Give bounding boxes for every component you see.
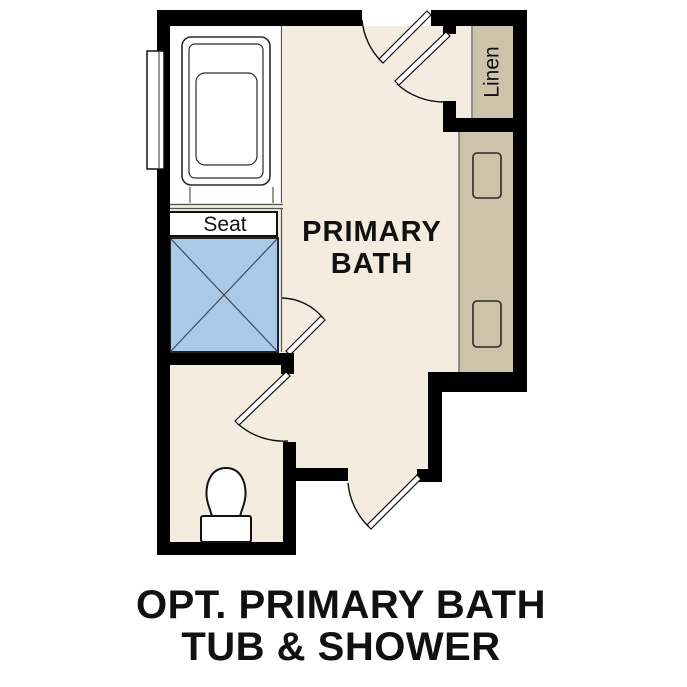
wall-below-shower xyxy=(157,353,294,365)
toilet-tank xyxy=(201,516,251,542)
floor-lower-hall xyxy=(295,380,428,468)
linen-label: Linen xyxy=(481,46,504,97)
floor-plan-page: Seat Linen xyxy=(0,0,687,687)
caption-line1: OPT. PRIMARY BATH xyxy=(136,583,546,627)
wall-right-lower xyxy=(428,372,442,482)
wall-toilet-bottom xyxy=(157,542,295,555)
window xyxy=(147,51,164,169)
room-label-line1: PRIMARY xyxy=(302,216,442,248)
tub-deck xyxy=(170,26,283,203)
vanity-counter xyxy=(459,132,513,372)
wall-top-left xyxy=(157,10,362,26)
room-label-line2: BATH xyxy=(331,248,413,280)
wall-toilet-door-stub xyxy=(281,353,294,374)
toilet-bowl xyxy=(206,468,245,517)
caption-line2: TUB & SHOWER xyxy=(181,625,500,669)
wall-linen-bottom xyxy=(443,118,513,132)
floor-plan-canvas: Seat Linen xyxy=(0,0,687,687)
wall-right xyxy=(513,10,527,392)
wall-below-vanity xyxy=(442,372,527,392)
seat-label: Seat xyxy=(203,213,246,236)
wall-toilet-right xyxy=(283,442,296,555)
wall-stub-linen-top xyxy=(443,10,456,34)
